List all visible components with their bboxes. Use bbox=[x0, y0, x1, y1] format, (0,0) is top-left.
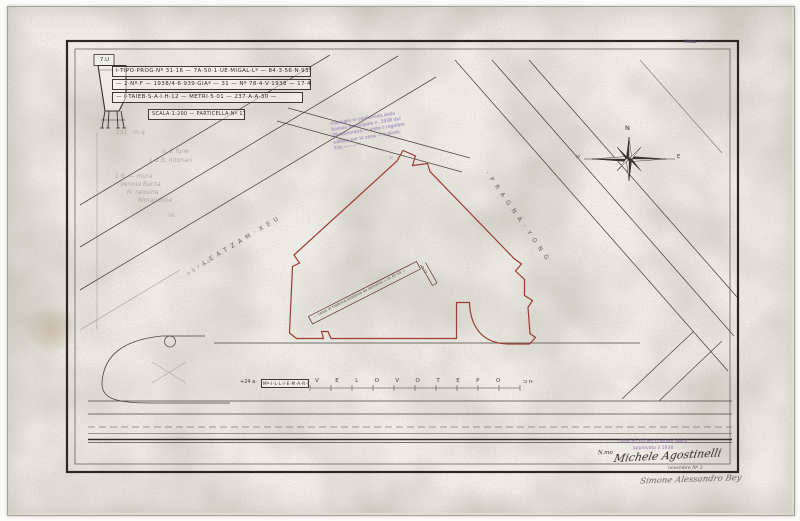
title-row-3: — I·TAIEB·S·A·I·H·12 — METRI·5·01 — 237·… bbox=[112, 92, 303, 103]
signature-note: novembre Nº 3 bbox=[668, 466, 703, 471]
bottom-street-suffix: ⊐ n· bbox=[523, 379, 534, 385]
pencil-note: 151 · m.q. bbox=[116, 129, 147, 136]
bottom-street-prefix: +24 a· bbox=[240, 379, 257, 385]
pencil-note: L 2 B. intonari bbox=[150, 157, 192, 164]
pencil-note: 1 B. — mura bbox=[115, 173, 152, 180]
pencil-note: N. ramona bbox=[127, 189, 158, 196]
pencil-note: Verona Banta bbox=[120, 181, 161, 188]
title-row-1: I·TIPO·PROG·Nº 31·16 — 7A·50·1·UE·MIGAL·… bbox=[112, 66, 311, 77]
scale-note-box: SCALA·1:200 — PARTICELLA·Nº 178 bbox=[148, 109, 245, 120]
compass-east-label: E bbox=[677, 154, 680, 160]
compass-north-label: N bbox=[625, 124, 630, 132]
signature-prefix: N.mo bbox=[598, 450, 613, 457]
pencil-note: te. bbox=[168, 212, 176, 219]
corner-label: 7.U bbox=[96, 57, 113, 63]
pencil-note: n. 2 fune bbox=[162, 148, 189, 155]
compass-west-label: W bbox=[576, 155, 580, 160]
title-row-2: — 2·Nº·F — 1938/4·6·939·GIAª — 31 — Nº 7… bbox=[112, 79, 311, 90]
pencil-cross-note: × · bbox=[388, 154, 398, 162]
scanned-site-plan: 7.U I·TIPO·PROG·Nº 31·16 — 7A·50·1·UE·MI… bbox=[0, 0, 800, 521]
bottom-street-box-label: Mª·I·L·L·I·E·M·A·R·I bbox=[261, 379, 309, 388]
bottom-street-letters: VELOVOTEPO bbox=[315, 378, 517, 384]
pencil-note: Rimandone bbox=[138, 197, 172, 204]
